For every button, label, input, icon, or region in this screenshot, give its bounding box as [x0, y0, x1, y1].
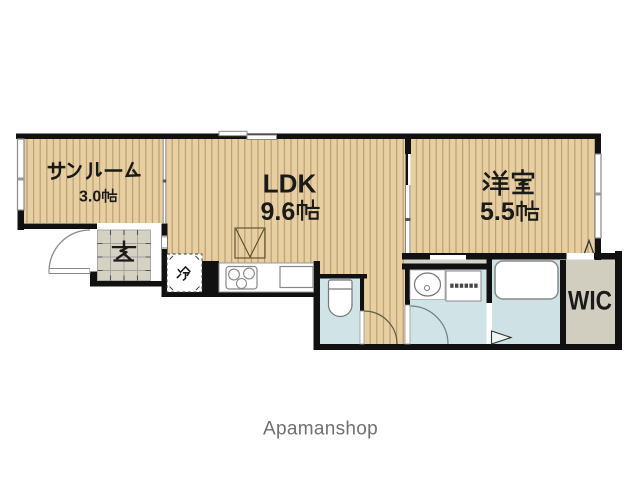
svg-text:3.0: 3.0 [79, 189, 101, 206]
svg-text:WIC: WIC [568, 286, 612, 316]
svg-text:Apamanshop: Apamanshop [263, 418, 378, 439]
svg-text:5.5: 5.5 [480, 198, 515, 226]
svg-text:9.6: 9.6 [261, 198, 296, 226]
svg-text:LDK: LDK [263, 169, 317, 199]
